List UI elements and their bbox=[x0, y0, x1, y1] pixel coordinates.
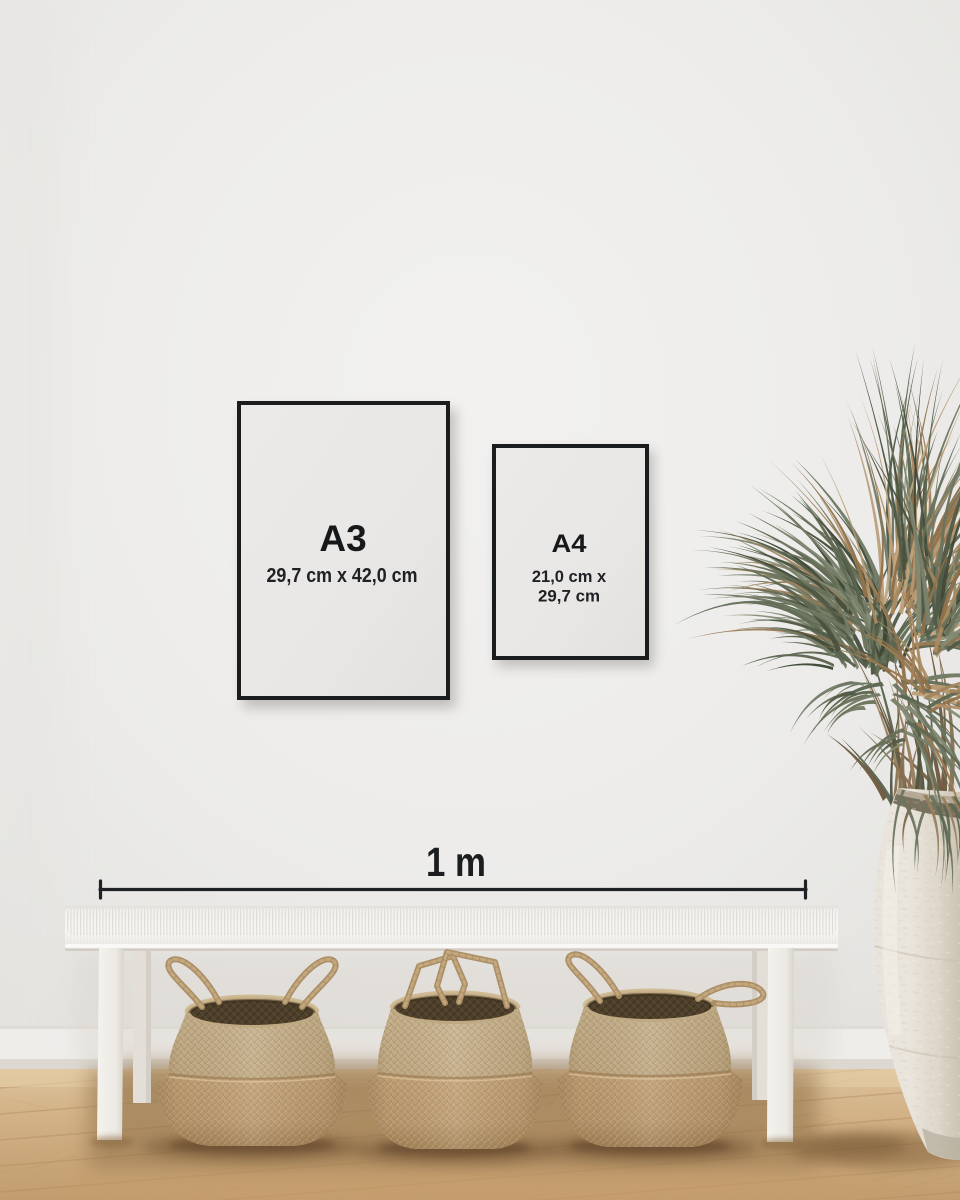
svg-text:1 m: 1 m bbox=[426, 839, 486, 885]
svg-text:29,7 cm x 42,0 cm: 29,7 cm x 42,0 cm bbox=[267, 564, 418, 587]
svg-text:29,7 cm: 29,7 cm bbox=[538, 588, 600, 606]
svg-text:A3: A3 bbox=[319, 518, 366, 559]
svg-text:A4: A4 bbox=[552, 530, 587, 558]
svg-text:21,0 cm x: 21,0 cm x bbox=[532, 568, 607, 586]
